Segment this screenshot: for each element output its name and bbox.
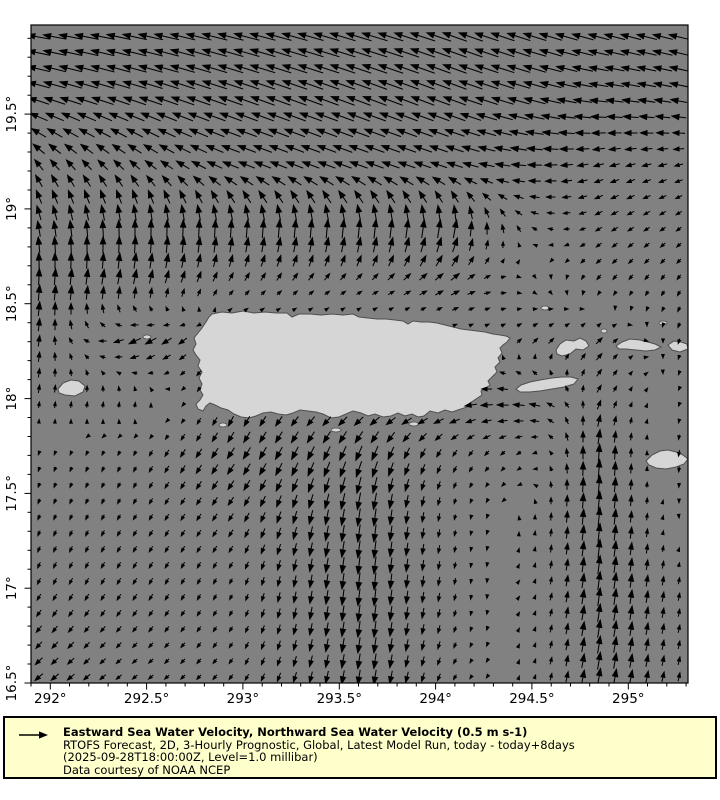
reference-arrow-icon (18, 729, 48, 741)
land-islet-south-1 (219, 423, 227, 427)
legend-title: Eastward Sea Water Velocity, Northward S… (63, 726, 575, 739)
y-tick-label: 16.5° (4, 665, 20, 702)
x-tick-label: 292.5° (124, 691, 169, 707)
x-tick-label: 292° (34, 691, 67, 707)
y-tick-label: 17° (4, 576, 20, 600)
y-tick-label: 18° (4, 387, 20, 411)
velocity-quiver-map: 292°292.5°293°293.5°294°294.5°295°19.5°1… (0, 0, 720, 712)
x-tick-label: 294° (419, 691, 452, 707)
sea-water-velocity-figure: 292°292.5°293°293.5°294°294.5°295°19.5°1… (0, 0, 720, 800)
legend-text-block: Eastward Sea Water Velocity, Northward S… (63, 726, 575, 776)
land-islet-e (541, 306, 549, 310)
land-islet-ne-2 (601, 329, 607, 333)
y-tick-label: 19° (4, 197, 20, 221)
x-tick-label: 294.5° (509, 691, 554, 707)
legend-credit: Data courtesy of NOAA NCEP (63, 764, 575, 777)
x-tick-label: 293.5° (317, 691, 362, 707)
y-tick-label: 19.5° (4, 96, 20, 133)
x-tick-label: 295° (612, 691, 645, 707)
legend-run-info: (2025-09-28T18:00:00Z, Level=1.0 milliba… (63, 751, 575, 764)
x-tick-label: 293° (227, 691, 260, 707)
y-tick-label: 17.5° (4, 475, 20, 512)
land-caja-de-muertos (331, 428, 341, 432)
legend-box: Eastward Sea Water Velocity, Northward S… (3, 716, 717, 779)
y-tick-label: 18.5° (4, 285, 20, 322)
